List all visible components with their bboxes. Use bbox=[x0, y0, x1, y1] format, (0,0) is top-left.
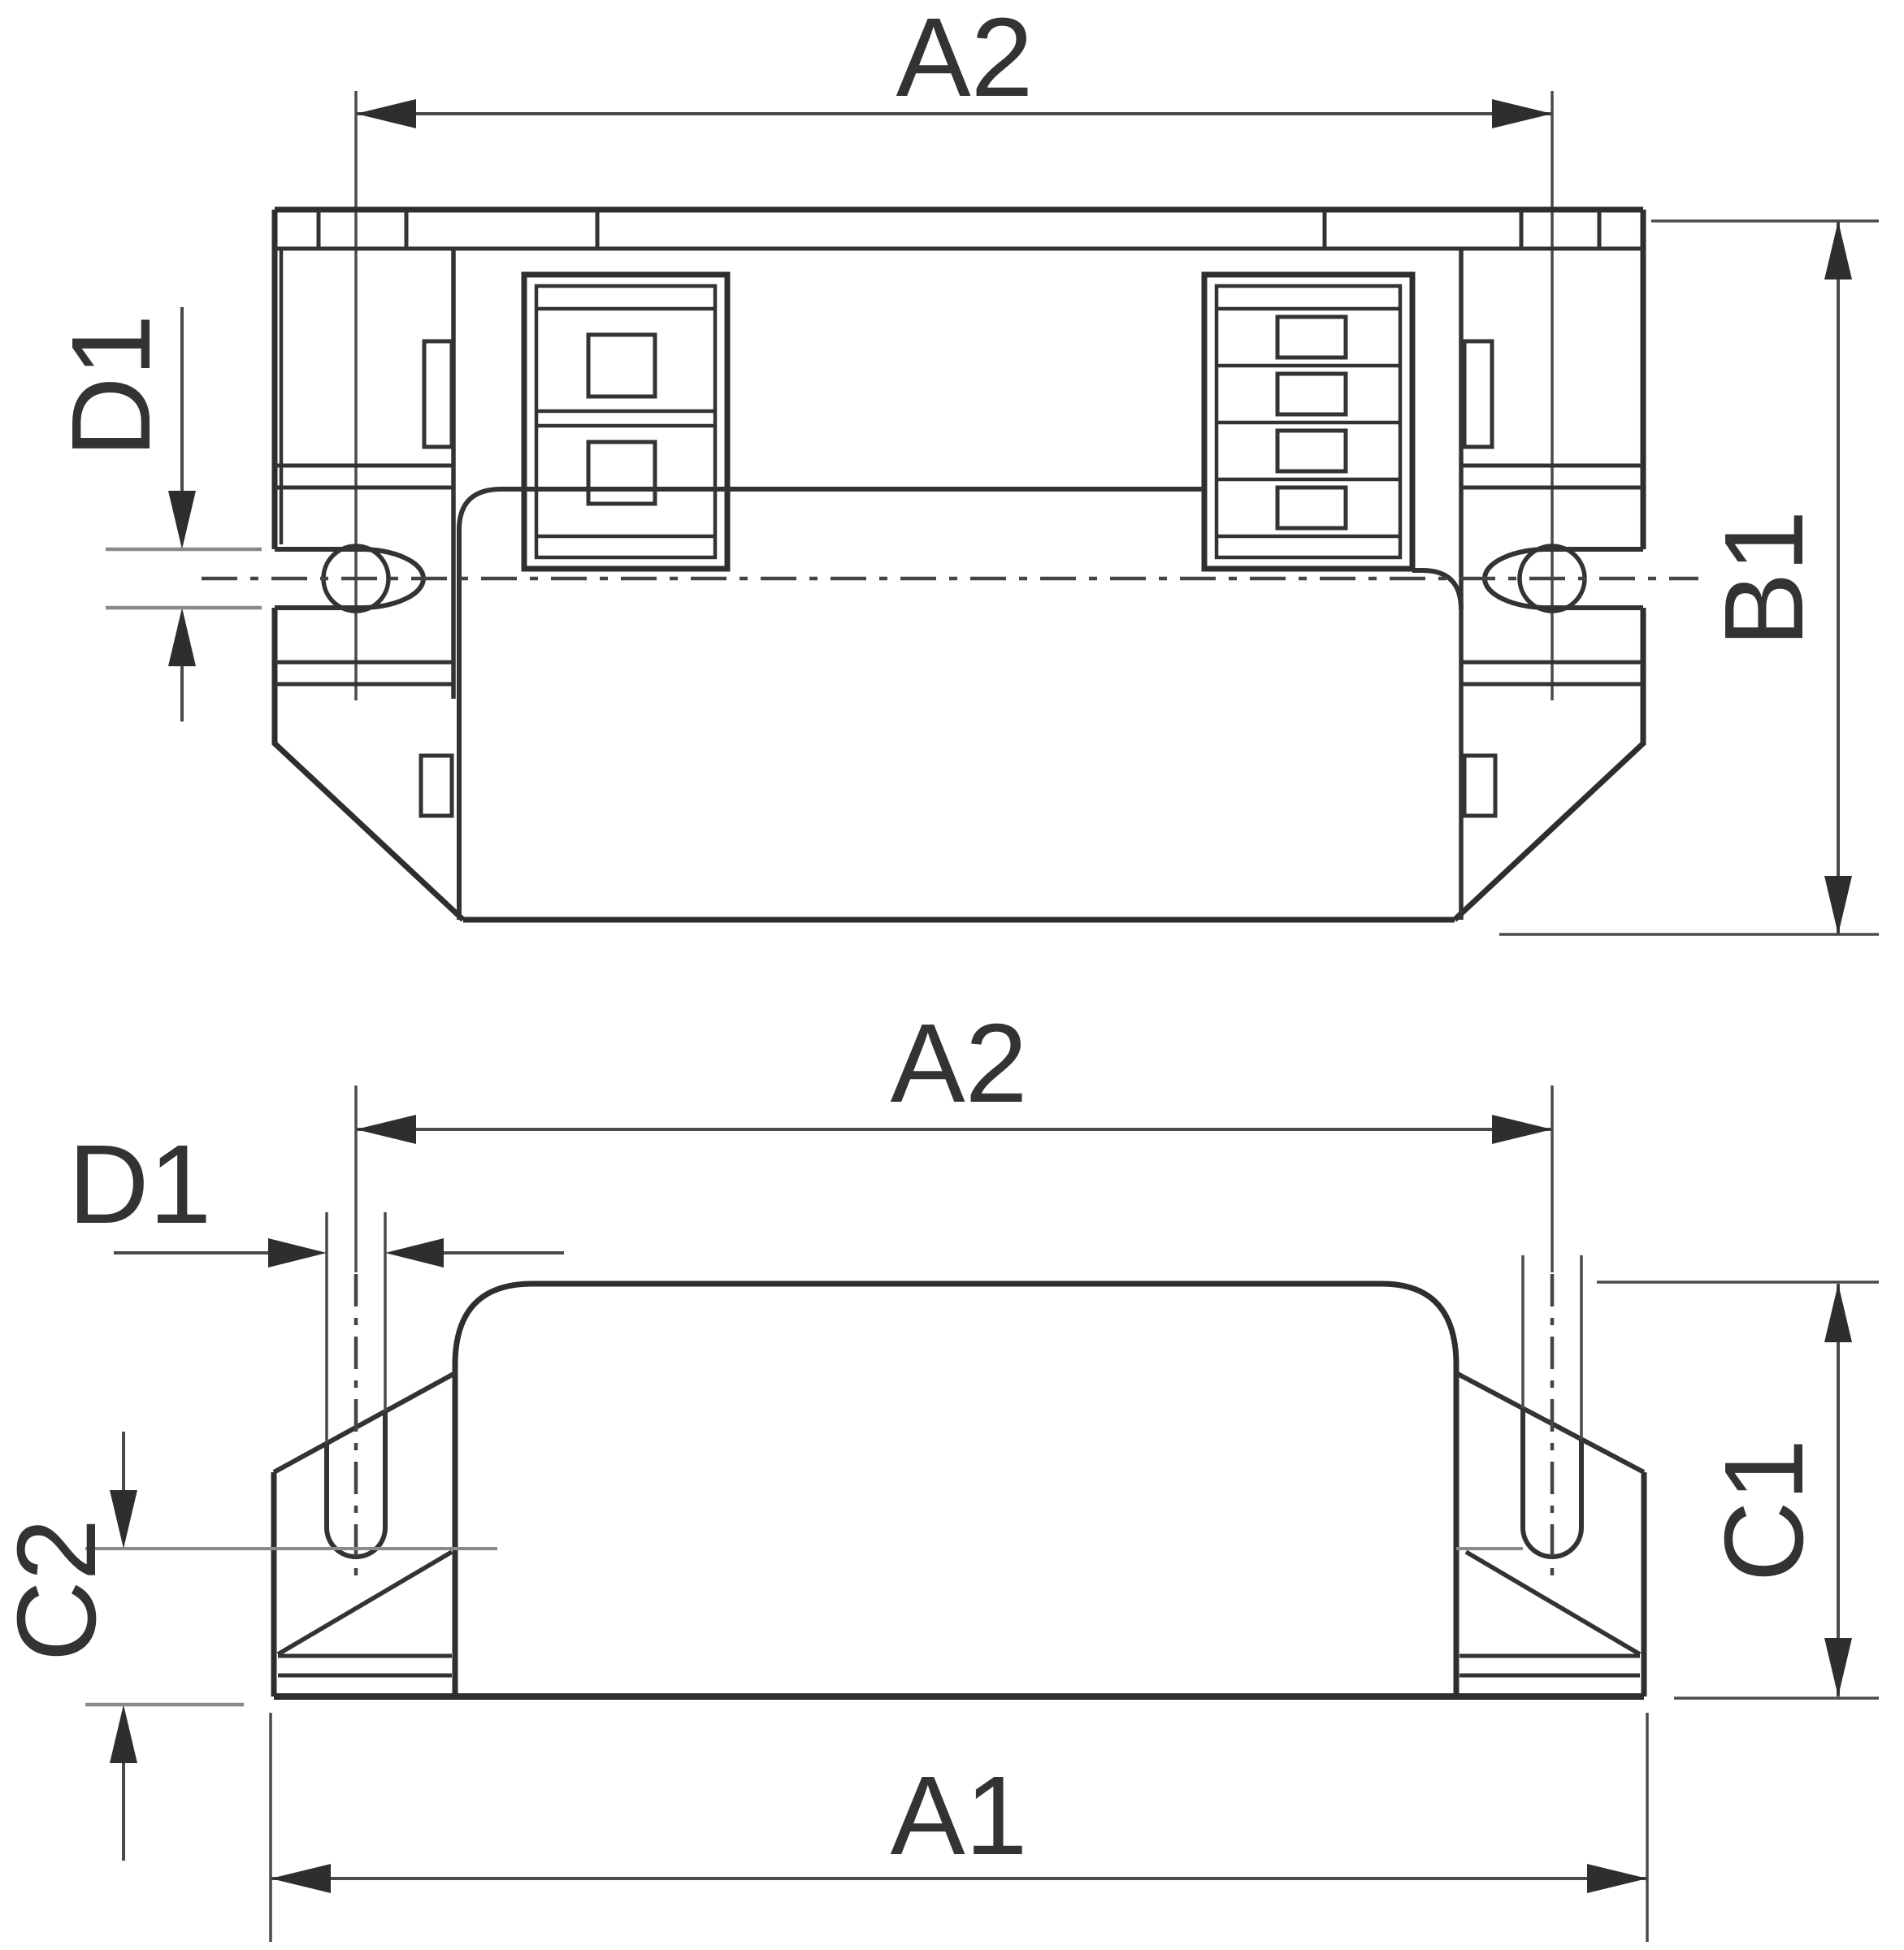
drawing-page: A2 bbox=[0, 0, 1904, 1950]
dim-label-a1: A1 bbox=[891, 1753, 1028, 1878]
arrowhead-up bbox=[168, 608, 196, 666]
terminal-cell bbox=[588, 335, 655, 396]
dim-label-d1-top: D1 bbox=[49, 314, 174, 457]
dim-c1: C1 bbox=[1597, 1282, 1879, 1698]
terminal-cell bbox=[1277, 317, 1346, 357]
dim-c2: C2 bbox=[0, 1432, 244, 1861]
dim-label-a2-top: A2 bbox=[896, 0, 1034, 120]
side-view: A2 D1 bbox=[0, 1001, 1879, 1942]
dim-d1-side: D1 bbox=[68, 1122, 564, 1267]
arrowhead-down bbox=[168, 491, 196, 549]
arrowhead-left bbox=[356, 99, 416, 128]
side-slot-left bbox=[85, 1212, 497, 1586]
flange-column-left bbox=[275, 249, 453, 816]
case-outline bbox=[459, 489, 1461, 920]
gusset bbox=[278, 1552, 452, 1654]
dim-label-c2: C2 bbox=[0, 1519, 119, 1662]
arrowhead-up bbox=[110, 1705, 137, 1763]
plate-outline bbox=[275, 210, 1643, 920]
arrowhead-down bbox=[1824, 1638, 1852, 1696]
top-view: A2 bbox=[49, 0, 1879, 934]
arrowhead-left bbox=[271, 1864, 331, 1893]
clip-tab bbox=[1464, 756, 1495, 816]
arrowhead-up bbox=[1824, 1284, 1852, 1342]
clip-tab bbox=[424, 341, 452, 447]
arrowhead-left bbox=[356, 1115, 416, 1144]
arrowhead-left bbox=[385, 1238, 444, 1267]
top-rail bbox=[275, 211, 1643, 249]
arrowhead-right bbox=[1587, 1864, 1647, 1893]
flange-left bbox=[274, 1373, 455, 1696]
clip-tab bbox=[421, 756, 452, 816]
terminal-block-2pole bbox=[524, 275, 727, 569]
dim-a1: A1 bbox=[271, 1713, 1647, 1942]
terminal-cell bbox=[588, 442, 655, 504]
dim-a2-side: A2 bbox=[356, 1001, 1552, 1272]
terminal-cell bbox=[1277, 374, 1346, 414]
arrowhead-up bbox=[1824, 221, 1852, 279]
body-outline bbox=[274, 1284, 1644, 1696]
terminal-cell bbox=[1277, 431, 1346, 471]
side-slot-right bbox=[1456, 1255, 1581, 1586]
arrowhead-down bbox=[1824, 876, 1852, 934]
dim-label-d1-side: D1 bbox=[68, 1122, 211, 1247]
terminal-cell bbox=[1277, 487, 1346, 528]
gusset bbox=[1466, 1552, 1640, 1654]
dim-label-a2-side: A2 bbox=[891, 1001, 1028, 1126]
arrowhead-right bbox=[1492, 1115, 1552, 1144]
arrowhead-right bbox=[1492, 99, 1552, 128]
dim-label-c1: C1 bbox=[1702, 1439, 1827, 1582]
clip-tab bbox=[1464, 341, 1492, 447]
dim-a2-top: A2 bbox=[356, 0, 1552, 128]
flange-right bbox=[1456, 1373, 1644, 1696]
dim-d1-top: D1 bbox=[49, 307, 262, 721]
dim-label-b1: B1 bbox=[1702, 510, 1827, 648]
arrowhead-right bbox=[268, 1238, 327, 1267]
terminal-block-4pole bbox=[1204, 275, 1412, 569]
